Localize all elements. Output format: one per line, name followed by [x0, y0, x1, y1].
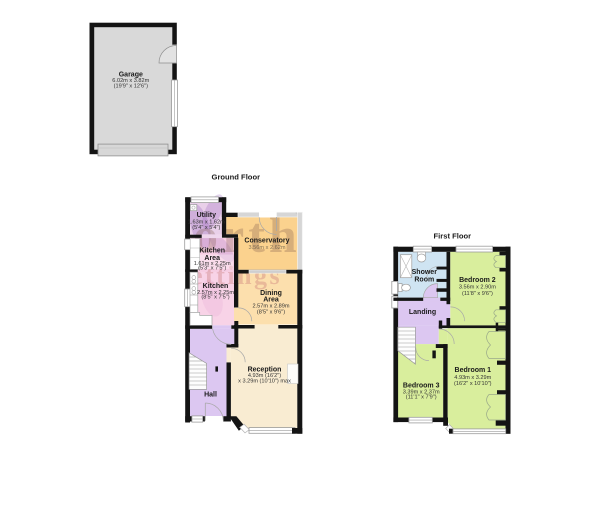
svg-text:Kitchen: Kitchen	[203, 283, 229, 290]
svg-text:Kitchen: Kitchen	[199, 248, 225, 255]
svg-text:Bedroom 2: Bedroom 2	[459, 277, 496, 284]
svg-text:(8'5" x 9'6"): (8'5" x 9'6")	[257, 309, 285, 315]
svg-text:(11'8" x 9'6"): (11'8" x 9'6")	[462, 291, 493, 297]
svg-text:x 3.29m (10'10") max: x 3.29m (10'10") max	[238, 379, 291, 385]
svg-text:Landing: Landing	[409, 309, 436, 316]
svg-text:(16'2" x 10'10"): (16'2" x 10'10")	[454, 381, 492, 387]
svg-text:Utility: Utility	[197, 212, 217, 219]
svg-text:Conservatory: Conservatory	[244, 238, 289, 245]
svg-text:Bedroom 3: Bedroom 3	[403, 382, 440, 389]
svg-text:Ground Floor: Ground Floor	[212, 173, 261, 182]
svg-text:First Floor: First Floor	[434, 231, 472, 240]
svg-text:(5'3" x 7'5"): (5'3" x 7'5")	[198, 266, 226, 272]
svg-text:Shower: Shower	[412, 269, 438, 276]
svg-text:Hall: Hall	[204, 391, 217, 398]
svg-text:(5'4" x 5'4"): (5'4" x 5'4")	[192, 225, 220, 231]
svg-text:Bedroom 1: Bedroom 1	[455, 367, 492, 374]
svg-text:(19'9" x 12'6"): (19'9" x 12'6")	[114, 84, 149, 90]
svg-text:Room: Room	[414, 276, 434, 283]
svg-text:3.56m x 2.90m: 3.56m x 2.90m	[459, 285, 496, 291]
svg-text:3.56m x 2.62m: 3.56m x 2.62m	[249, 245, 286, 251]
svg-text:(8'5" x 7'5"): (8'5" x 7'5")	[201, 295, 229, 301]
svg-text:(11'1" x 7'9"): (11'1" x 7'9")	[406, 395, 437, 401]
